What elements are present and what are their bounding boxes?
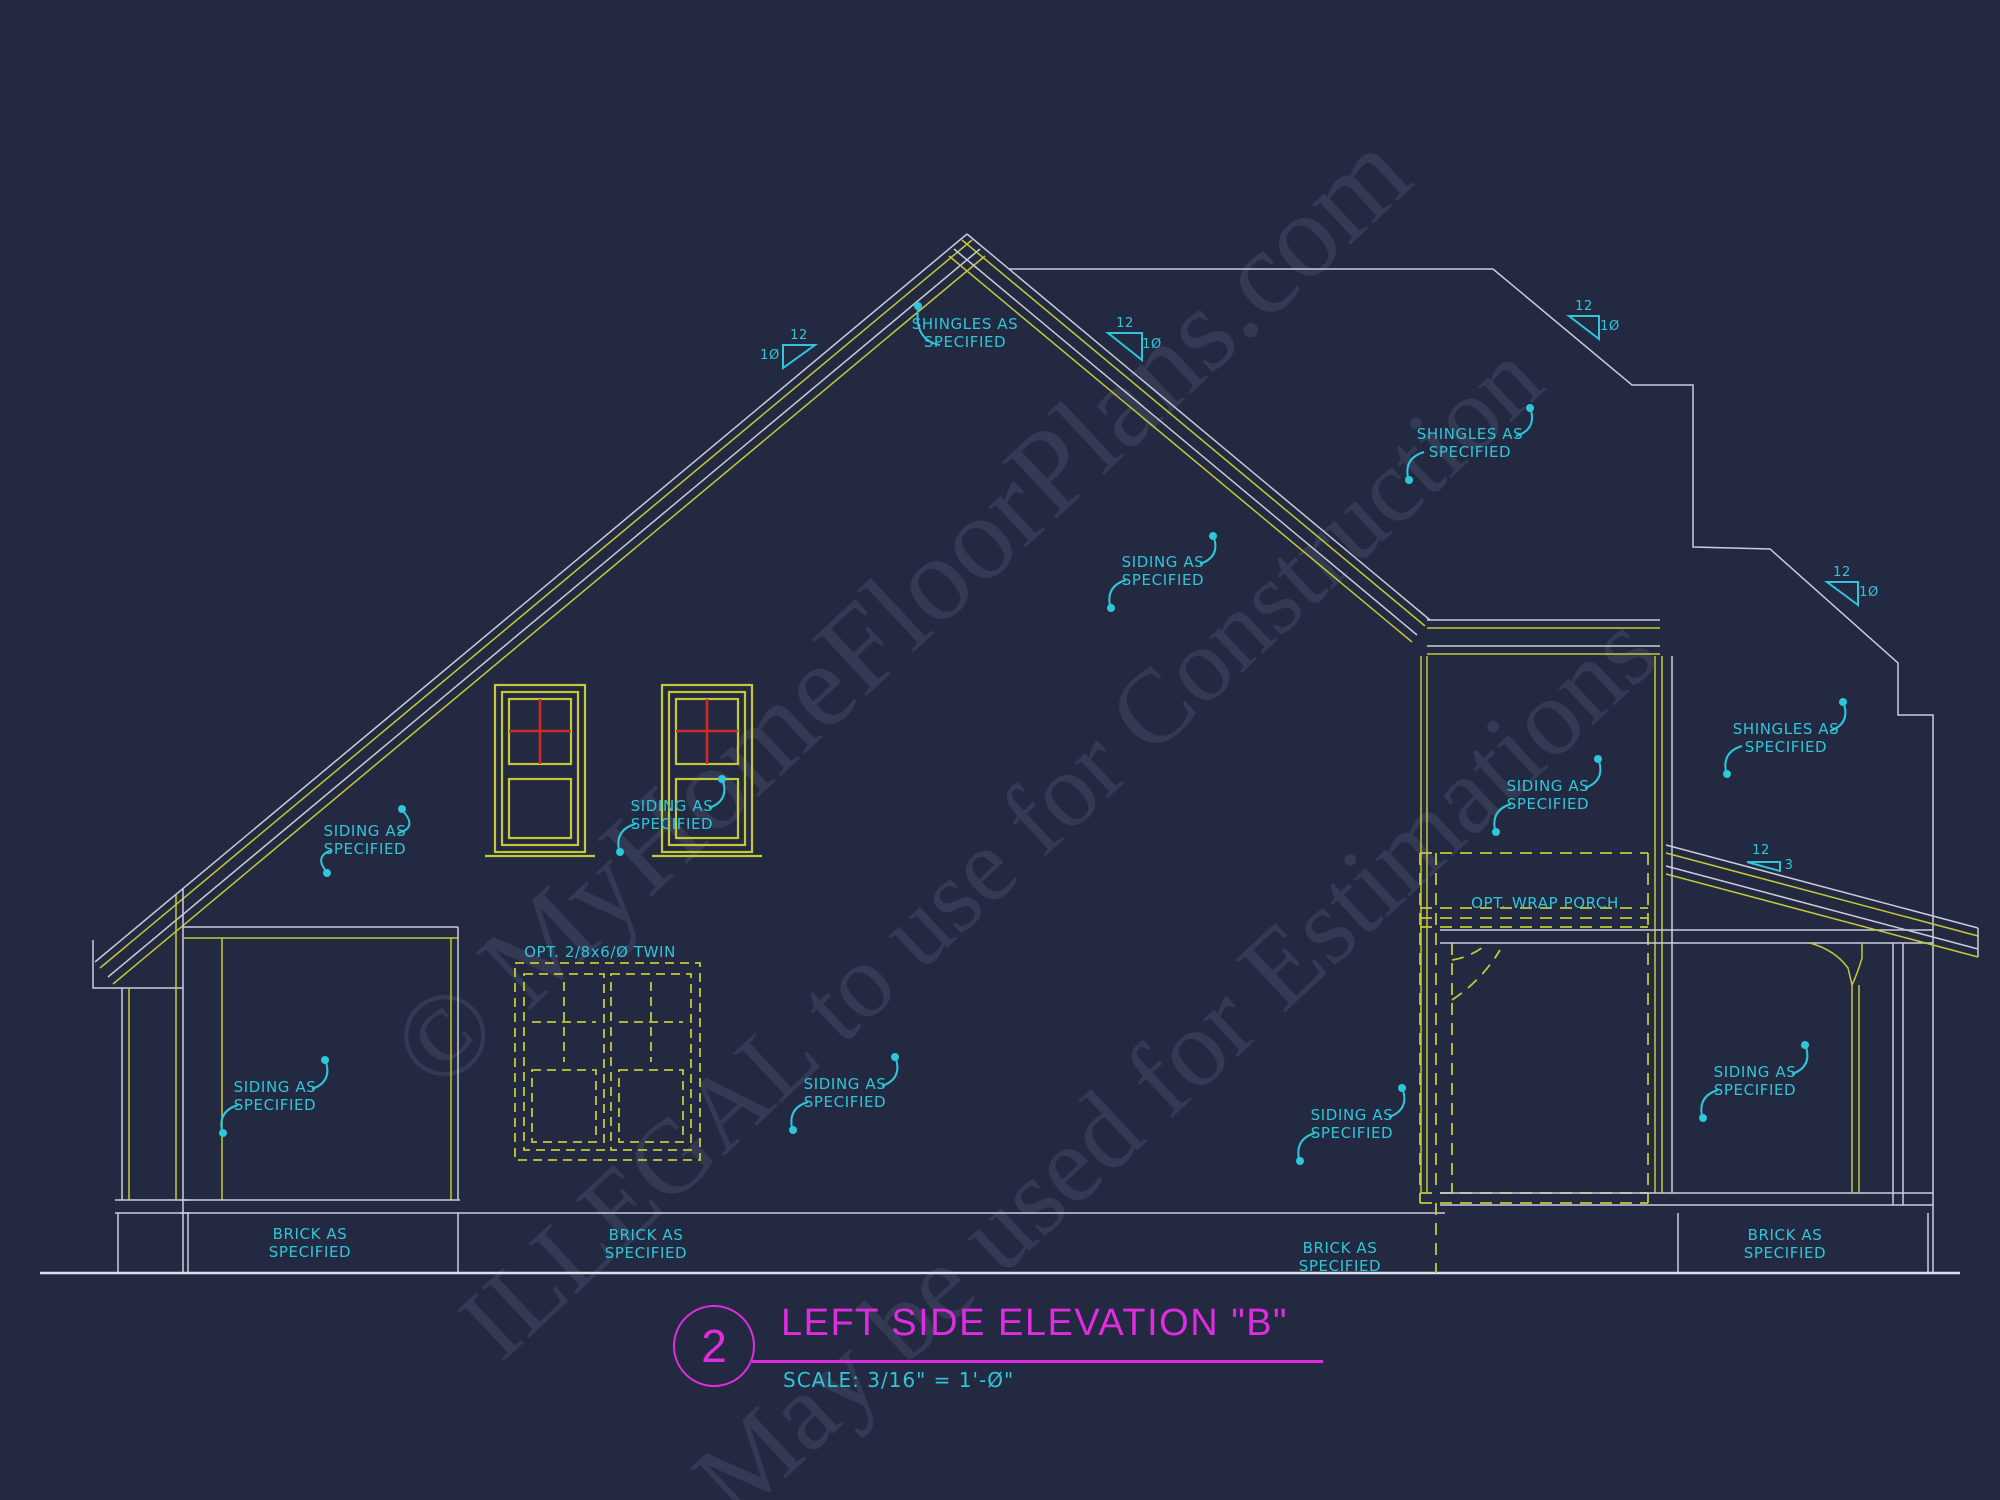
annotation-pitch-2-rise: 1Ø [1142, 337, 1162, 353]
scale-note: SCALE: 3/16" = 1'-Ø" [783, 1368, 1014, 1392]
annotation-siding-7: SIDING ASSPECIFIED [1311, 1106, 1394, 1142]
annotation-brick-3: BRICK ASSPECIFIED [1299, 1239, 1381, 1275]
annotation-siding-6: SIDING ASSPECIFIED [804, 1075, 887, 1111]
annotation-brick-2: BRICK ASSPECIFIED [605, 1226, 687, 1262]
window-2-muntins [676, 699, 738, 764]
annotation-siding-1: SIDING ASSPECIFIED [324, 822, 407, 858]
pitch-triangle-right [1827, 582, 1858, 605]
annotation-siding-3: SIDING ASSPECIFIED [1122, 553, 1205, 589]
window-1-muntins [509, 699, 571, 764]
pitch-triangles [783, 316, 1858, 871]
annotation-siding-5: SIDING ASSPECIFIED [234, 1078, 317, 1114]
annotation-pitch-1-rise: 1Ø [760, 348, 780, 364]
wall-base-foundation [180, 1200, 1928, 1273]
annotation-pitch-4-run: 12 [1833, 565, 1851, 581]
annotation-siding-4: SIDING ASSPECIFIED [1507, 777, 1590, 813]
annotation-pitch-5-rise: 3 [1785, 858, 1794, 874]
left-wing-walls [93, 889, 190, 1273]
left-room-walls [183, 927, 458, 1200]
drawing-title: LEFT SIDE ELEVATION "B" [781, 1302, 1288, 1345]
annotation-pitch-3-run: 12 [1575, 299, 1593, 315]
annotation-opt-twin-door: OPT. 2/8x6/Ø TWIN [524, 943, 676, 961]
annotation-pitch-5-run: 12 [1752, 843, 1770, 859]
annotation-pitch-4-rise: 1Ø [1859, 585, 1879, 601]
annotation-shingles-3: SHINGLES ASSPECIFIED [1733, 720, 1840, 756]
elevation-linework [0, 0, 2000, 1500]
annotation-brick-1: BRICK ASSPECIFIED [269, 1225, 351, 1261]
annotation-brick-4: BRICK ASSPECIFIED [1744, 1226, 1826, 1262]
porch-dashed-outline [1420, 853, 1648, 1273]
annotation-pitch-2-run: 12 [1116, 316, 1134, 332]
annotation-pitch-1-run: 12 [790, 328, 808, 344]
elevation-drawing-sheet: © MyHomeFloorPlans.com ILLEGAL to use fo… [0, 0, 2000, 1500]
pitch-triangle-porch [1747, 862, 1780, 871]
porch-roof [1666, 845, 1978, 957]
porch-structure [1421, 656, 1933, 1205]
window-1 [485, 685, 595, 856]
title-underline [752, 1360, 1323, 1363]
door-opt-twin [515, 963, 700, 1160]
sheet-number: 2 [701, 1319, 727, 1373]
annotation-siding-2: SIDING ASSPECIFIED [631, 797, 714, 833]
annotation-shingles-1: SHINGLES ASSPECIFIED [912, 315, 1019, 351]
annotation-siding-8: SIDING ASSPECIFIED [1714, 1063, 1797, 1099]
rear-wing-outline [1009, 269, 1933, 1273]
annotation-shingles-2: SHINGLES ASSPECIFIED [1417, 425, 1524, 461]
annotation-pitch-3-rise: 1Ø [1600, 319, 1620, 335]
annotation-opt-wrap-porch: OPT. WRAP PORCH [1471, 894, 1619, 912]
leader-arcs [219, 302, 1847, 1165]
sheet-number-bubble: 2 [673, 1305, 755, 1387]
